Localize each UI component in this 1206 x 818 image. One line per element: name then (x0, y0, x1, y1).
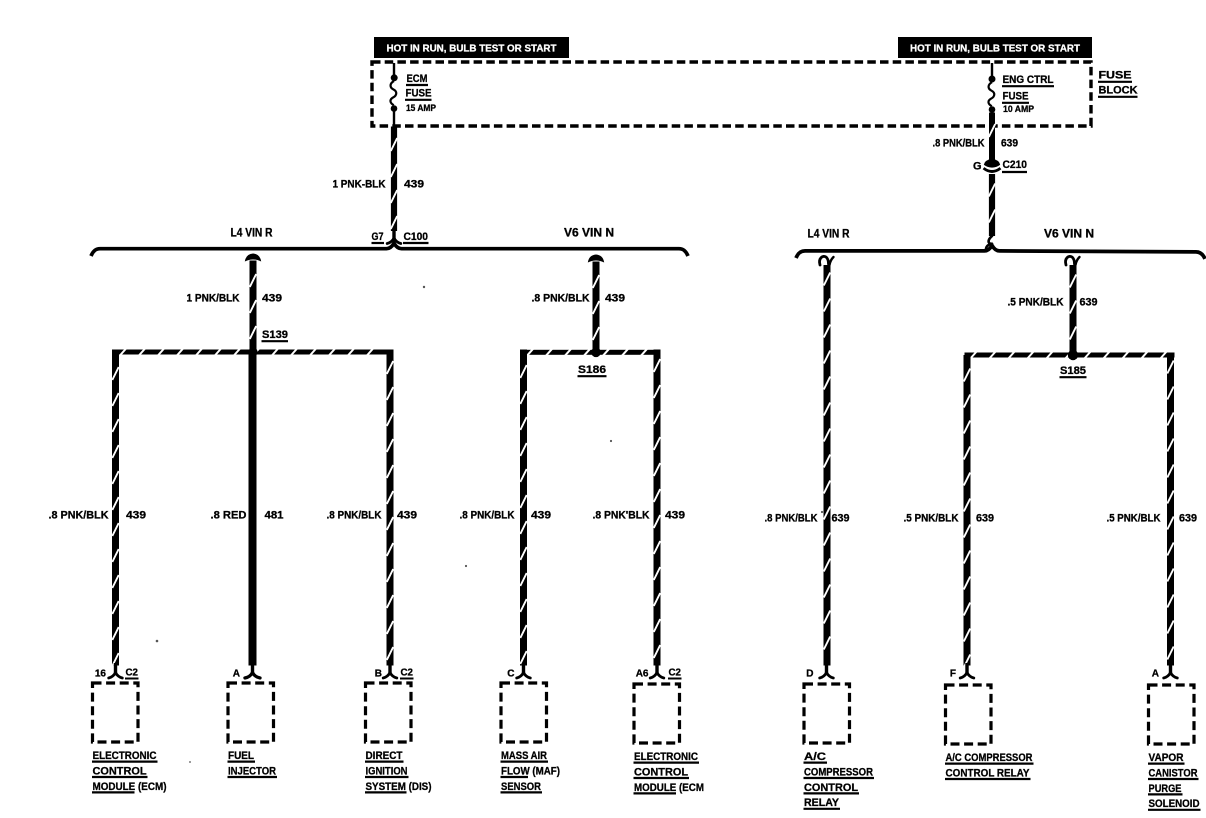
svg-text:V6 VIN N: V6 VIN N (564, 228, 614, 240)
svg-text:CANISTOR: CANISTOR (1149, 767, 1198, 779)
svg-text:439: 439 (404, 179, 424, 191)
svg-text:10 AMP: 10 AMP (1003, 104, 1035, 115)
svg-text:C210: C210 (1003, 159, 1028, 171)
svg-text:MASS AIR: MASS AIR (501, 750, 547, 762)
svg-text:CONTROL: CONTROL (93, 765, 147, 777)
svg-text:A: A (233, 669, 240, 680)
svg-text:.8 PNK/BLK: .8 PNK/BLK (532, 293, 590, 305)
svg-text:F: F (950, 669, 956, 680)
svg-text:.8 PNK/BLK: .8 PNK/BLK (460, 510, 515, 522)
svg-text:MODULE (ECM: MODULE (ECM (634, 782, 704, 794)
svg-text:639: 639 (976, 513, 994, 525)
svg-text:C2: C2 (669, 668, 682, 679)
svg-text:BLOCK: BLOCK (1099, 85, 1138, 97)
svg-text:639: 639 (832, 513, 850, 525)
svg-text:.5 PNK/BLK: .5 PNK/BLK (904, 513, 959, 525)
svg-text:B: B (375, 669, 382, 680)
svg-text:.8 PNK/BLK: .8 PNK/BLK (933, 138, 985, 150)
svg-text:439: 439 (126, 510, 146, 522)
svg-text:SYSTEM (DIS): SYSTEM (DIS) (366, 781, 432, 793)
svg-text:ECM: ECM (407, 73, 428, 85)
svg-text:A/C COMPRESSOR: A/C COMPRESSOR (946, 752, 1033, 764)
svg-text:C: C (507, 669, 514, 680)
svg-text:G7: G7 (372, 231, 384, 243)
svg-text:FUEL: FUEL (228, 750, 254, 762)
svg-text:.8 PNK'BLK: .8 PNK'BLK (593, 510, 650, 522)
svg-text:481: 481 (265, 510, 284, 522)
svg-text:.8 PNK/BLK: .8 PNK/BLK (765, 513, 818, 525)
svg-text:439: 439 (262, 293, 282, 305)
svg-text:ELECTRONIC: ELECTRONIC (93, 750, 157, 762)
svg-text:.8 PNK/BLK: .8 PNK/BLK (327, 510, 382, 522)
svg-text:439: 439 (665, 510, 685, 522)
svg-text:S186: S186 (578, 364, 606, 376)
svg-text:SENSOR: SENSOR (501, 781, 541, 793)
svg-text:MODULE (ECM): MODULE (ECM) (93, 781, 167, 793)
svg-text:439: 439 (531, 510, 551, 522)
svg-text:VAPOR: VAPOR (1149, 752, 1184, 764)
svg-text:DIRECT: DIRECT (366, 750, 403, 762)
svg-text:D: D (806, 669, 813, 680)
svg-text:CONTROL: CONTROL (804, 782, 858, 794)
svg-text:RELAY: RELAY (804, 797, 840, 809)
svg-text:IGNITION: IGNITION (366, 765, 408, 777)
svg-text:C2: C2 (126, 668, 139, 679)
svg-text:HOT IN RUN, BULB TEST OR START: HOT IN RUN, BULB TEST OR START (910, 44, 1080, 55)
svg-text:V6 VIN N: V6 VIN N (1044, 229, 1094, 241)
svg-text:639: 639 (1001, 138, 1018, 150)
svg-text:.5 PNK/BLK: .5 PNK/BLK (1107, 513, 1161, 525)
svg-text:G: G (973, 161, 982, 173)
svg-text:1 PNK-BLK: 1 PNK-BLK (333, 179, 386, 191)
svg-text:639: 639 (1179, 513, 1197, 525)
svg-text:16: 16 (95, 669, 107, 680)
svg-text:C2: C2 (401, 668, 414, 679)
svg-text:L4 VIN R: L4 VIN R (808, 229, 851, 241)
svg-text:SOLENOID: SOLENOID (1149, 798, 1200, 810)
svg-text:15 AMP: 15 AMP (406, 103, 437, 114)
svg-text:HOT IN RUN, BULB TEST OR START: HOT IN RUN, BULB TEST OR START (387, 44, 557, 55)
svg-text:639: 639 (1080, 297, 1098, 309)
svg-text:439: 439 (605, 293, 625, 305)
svg-text:.5 PNK/BLK: .5 PNK/BLK (1008, 297, 1064, 309)
svg-text:S185: S185 (1060, 365, 1086, 377)
svg-text:.8 PNK/BLK: .8 PNK/BLK (49, 510, 109, 522)
svg-text:FUSE: FUSE (1003, 91, 1029, 103)
svg-text:FUSE: FUSE (1099, 70, 1132, 82)
svg-text:FUSE: FUSE (406, 88, 432, 100)
svg-text:INJECTOR: INJECTOR (228, 765, 276, 777)
svg-text:ENG CTRL: ENG CTRL (1003, 74, 1054, 86)
svg-text:S139: S139 (262, 329, 288, 341)
svg-text:A/C: A/C (804, 751, 826, 763)
svg-text:.8 RED: .8 RED (211, 510, 247, 522)
svg-text:C100: C100 (404, 231, 429, 243)
svg-text:439: 439 (397, 510, 417, 522)
svg-text:L4 VIN R: L4 VIN R (231, 228, 274, 240)
svg-text:A: A (1152, 669, 1159, 680)
svg-text:PURGE: PURGE (1149, 783, 1182, 795)
svg-text:1 PNK/BLK: 1 PNK/BLK (187, 293, 240, 305)
svg-text:FLOW (MAF): FLOW (MAF) (501, 765, 560, 777)
svg-text:CONTROL RELAY: CONTROL RELAY (946, 767, 1031, 779)
svg-text:CONTROL: CONTROL (634, 766, 688, 778)
svg-text:ELECTRONIC: ELECTRONIC (634, 751, 698, 763)
svg-text:COMPRESSOR: COMPRESSOR (804, 766, 873, 778)
svg-text:A6: A6 (636, 669, 649, 680)
